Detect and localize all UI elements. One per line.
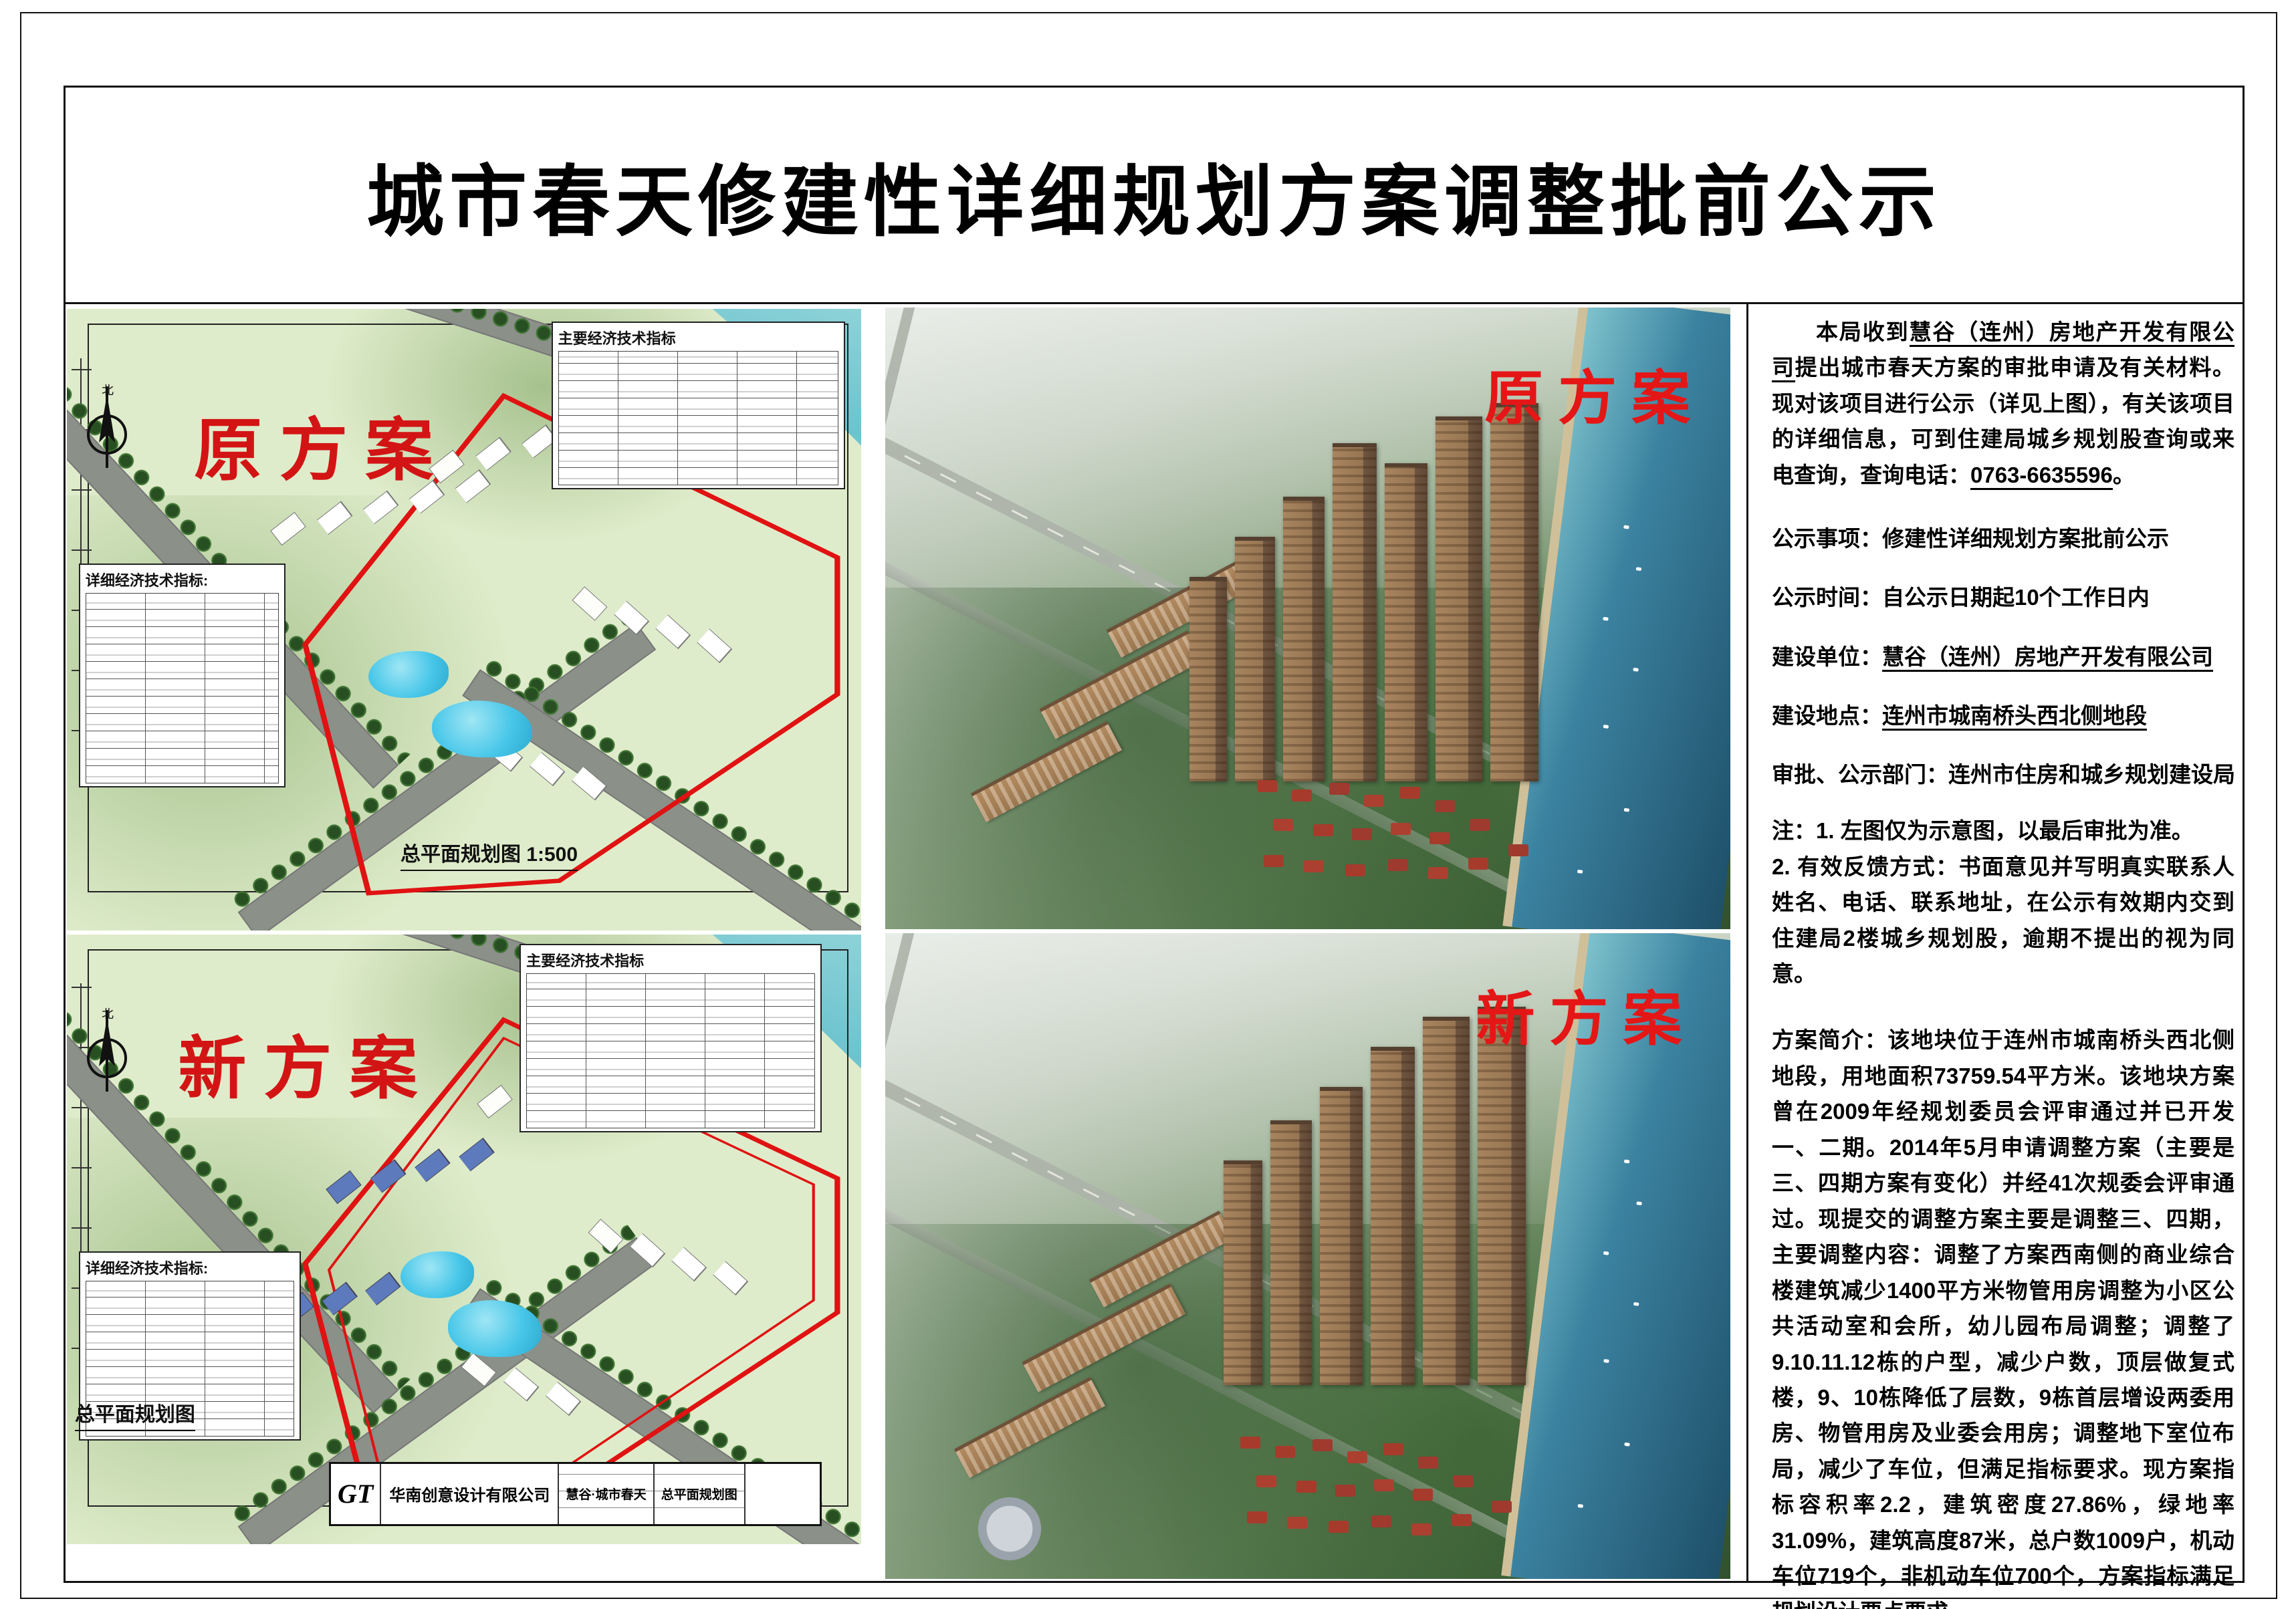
notice-item-matter: 公示事项：修建性详细规划方案批前公示 <box>1772 523 2234 554</box>
tower <box>1235 537 1275 781</box>
title-row: 城市春天修建性详细规划方案调整批前公示 <box>66 88 2243 304</box>
page-title: 城市春天修建性详细规划方案调整批前公示 <box>366 139 1942 251</box>
intro-paragraph: 本局收到慧谷（连州）房地产开发有限公司提出城市春天方案的审批申请及有关材料。现对… <box>1772 314 2234 493</box>
site-plan-new: 北 新方案 主要经济技术指标 详细经济技术指标: 总平面规划图 GT 华南创意设… <box>67 935 861 1544</box>
aerial-render-original: 原方案 <box>885 307 1730 929</box>
svg-text:北: 北 <box>102 384 114 397</box>
villa-cluster <box>1240 1437 1260 1449</box>
drawing-titleblock: GT 华南创意设计有限公司 慧谷·城市春天 总平面规划图 <box>329 1462 822 1526</box>
design-firm-name: 华南创意设计有限公司 <box>381 1464 559 1524</box>
table-grid <box>86 593 279 783</box>
north-compass-icon: 北 <box>76 384 138 471</box>
item-value: 自公示日期起10个工作日内 <box>1882 585 2150 610</box>
tower <box>1385 463 1427 781</box>
brief-paragraph: 方案简介：该地块位于连州市城南桥头西北侧地段，用地面积73759.54平方米。该… <box>1772 1022 2234 1609</box>
column-divider <box>1746 304 1748 1581</box>
intro-suffix: 。 <box>2113 463 2135 487</box>
plan-caption: 总平面规划图 <box>75 1398 195 1431</box>
intro-prefix: 本局收到 <box>1816 320 1910 344</box>
table-title: 详细经济技术指标: <box>86 569 279 590</box>
tower <box>1333 443 1377 781</box>
site-plan-original: 北 原方案 主要经济技术指标 详细经济技术指标: 总平面规划图 1:500 <box>67 309 861 931</box>
notice-poster: 城市春天修建性详细规划方案调整批前公示 <box>0 0 2296 1609</box>
brief-label: 方案简介： <box>1772 1027 1887 1052</box>
main-indicator-table: 主要经济技术指标 <box>520 944 821 1133</box>
item-label: 审批、公示部门： <box>1772 762 1948 787</box>
tower <box>1436 416 1482 781</box>
notice-text-column: 本局收到慧谷（连州）房地产开发有限公司提出城市春天方案的审批申请及有关材料。现对… <box>1772 314 2234 1581</box>
table-title: 主要经济技术指标 <box>526 949 814 971</box>
notice-item-period: 公示时间：自公示日期起10个工作日内 <box>1772 582 2234 613</box>
villa-cluster <box>1257 780 1277 792</box>
notice-item-authority: 审批、公示部门：连州市住房和城乡规划建设局 <box>1772 759 2234 790</box>
tower <box>1478 1007 1526 1385</box>
titleblock-project: 慧谷·城市春天 <box>559 1464 654 1524</box>
item-value: 慧谷（连州）房地产开发有限公司 <box>1882 644 2213 672</box>
tower <box>1490 403 1538 781</box>
brief-text: 该地块位于连州市城南桥头西北侧地段，用地面积73759.54平方米。该地块方案曾… <box>1772 1027 2234 1609</box>
round-plaza <box>969 1489 1050 1569</box>
tower-cluster <box>1224 1011 1526 1385</box>
titleblock-fields <box>745 1464 820 1524</box>
item-value: 修建性详细规划方案批前公示 <box>1882 526 2169 551</box>
tower <box>1371 1047 1415 1385</box>
table-grid <box>558 351 839 485</box>
boats <box>1623 525 1629 529</box>
item-value: 连州市住房和城乡规划建设局 <box>1948 762 2235 787</box>
render-original-label: 原方案 <box>1484 351 1705 436</box>
tower-cluster <box>1189 407 1538 781</box>
pond <box>400 1251 474 1298</box>
plan-caption: 总平面规划图 1:500 <box>400 838 578 871</box>
table-grid <box>526 973 814 1129</box>
design-firm-logo: GT <box>331 1464 381 1524</box>
plan-original-label: 原方案 <box>194 396 451 494</box>
item-value: 连州市城南桥头西北侧地段 <box>1882 703 2147 731</box>
inquiry-phone: 0763-6635596 <box>1970 463 2113 490</box>
tower <box>1224 1160 1262 1385</box>
north-compass-icon: 北 <box>76 1007 138 1094</box>
note-line-2: 2. 有效反馈方式：书面意见并写明真实联系人姓名、电话、联系地址，在公示有效期内… <box>1772 849 2234 992</box>
table-title: 详细经济技术指标: <box>86 1257 295 1278</box>
render-new-label: 新方案 <box>1476 972 1696 1057</box>
tower <box>1423 1017 1470 1385</box>
item-label: 公示时间： <box>1772 585 1882 610</box>
tower <box>1283 497 1325 781</box>
notice-item-builder: 建设单位：慧谷（连州）房地产开发有限公司 <box>1772 642 2234 672</box>
detail-indicator-table: 详细经济技术指标: <box>79 564 285 787</box>
svg-text:北: 北 <box>102 1007 114 1021</box>
item-label: 建设地点： <box>1772 703 1882 728</box>
boats <box>1624 1159 1630 1163</box>
tower <box>1270 1120 1312 1385</box>
note-line-1: 注：1. 左图仅为示意图，以最后审批为准。 <box>1772 813 2234 848</box>
plan-new-label: 新方案 <box>178 1014 435 1112</box>
main-indicator-table: 主要经济技术指标 <box>552 322 846 489</box>
item-label: 公示事项： <box>1772 526 1882 551</box>
tower <box>1189 577 1227 781</box>
item-label: 建设单位： <box>1772 644 1882 669</box>
notice-item-location: 建设地点：连州市城南桥头西北侧地段 <box>1772 701 2234 731</box>
table-title: 主要经济技术指标 <box>558 327 839 348</box>
titleblock-drawing-name: 总平面规划图 <box>655 1464 745 1524</box>
tower <box>1320 1087 1363 1385</box>
aerial-render-new: 新方案 <box>885 933 1730 1579</box>
